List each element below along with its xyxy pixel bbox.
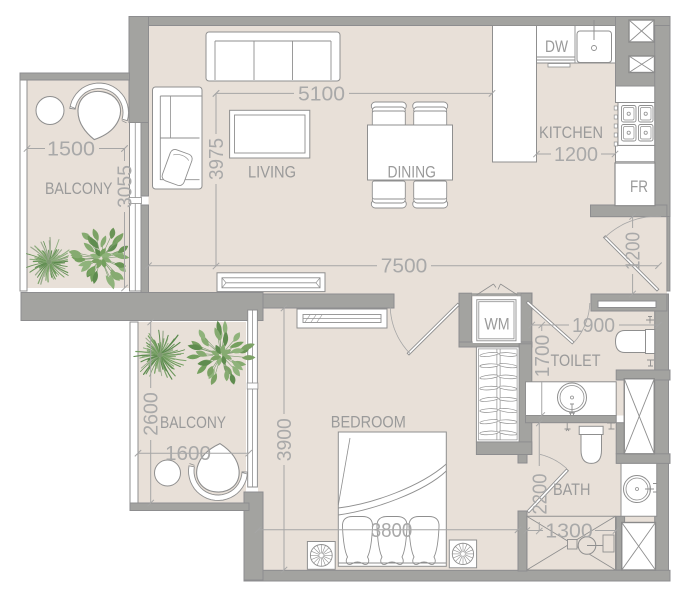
svg-text:1900: 1900: [572, 314, 615, 337]
svg-text:BATH: BATH: [553, 480, 591, 499]
svg-text:BEDROOM: BEDROOM: [331, 413, 406, 432]
svg-text:3055: 3055: [114, 165, 137, 208]
svg-text:TOILET: TOILET: [551, 351, 601, 370]
svg-text:3975: 3975: [205, 138, 228, 180]
svg-text:WM: WM: [484, 315, 509, 334]
svg-text:3800: 3800: [371, 519, 413, 542]
svg-text:KITCHEN: KITCHEN: [539, 123, 603, 142]
svg-text:DINING: DINING: [387, 163, 436, 182]
svg-text:DW: DW: [545, 37, 568, 56]
svg-text:BALCONY: BALCONY: [160, 413, 226, 432]
svg-text:7500: 7500: [381, 255, 428, 278]
svg-text:3900: 3900: [273, 418, 296, 461]
svg-text:5100: 5100: [298, 82, 345, 105]
svg-text:1200: 1200: [622, 232, 645, 270]
svg-text:1300: 1300: [545, 520, 593, 543]
svg-text:BALCONY: BALCONY: [45, 179, 113, 198]
svg-text:1600: 1600: [165, 442, 211, 465]
svg-text:1200: 1200: [554, 143, 598, 166]
svg-text:FR: FR: [630, 177, 648, 196]
svg-text:2200: 2200: [528, 474, 551, 515]
svg-text:1500: 1500: [47, 138, 95, 161]
svg-text:LIVING: LIVING: [248, 163, 296, 182]
